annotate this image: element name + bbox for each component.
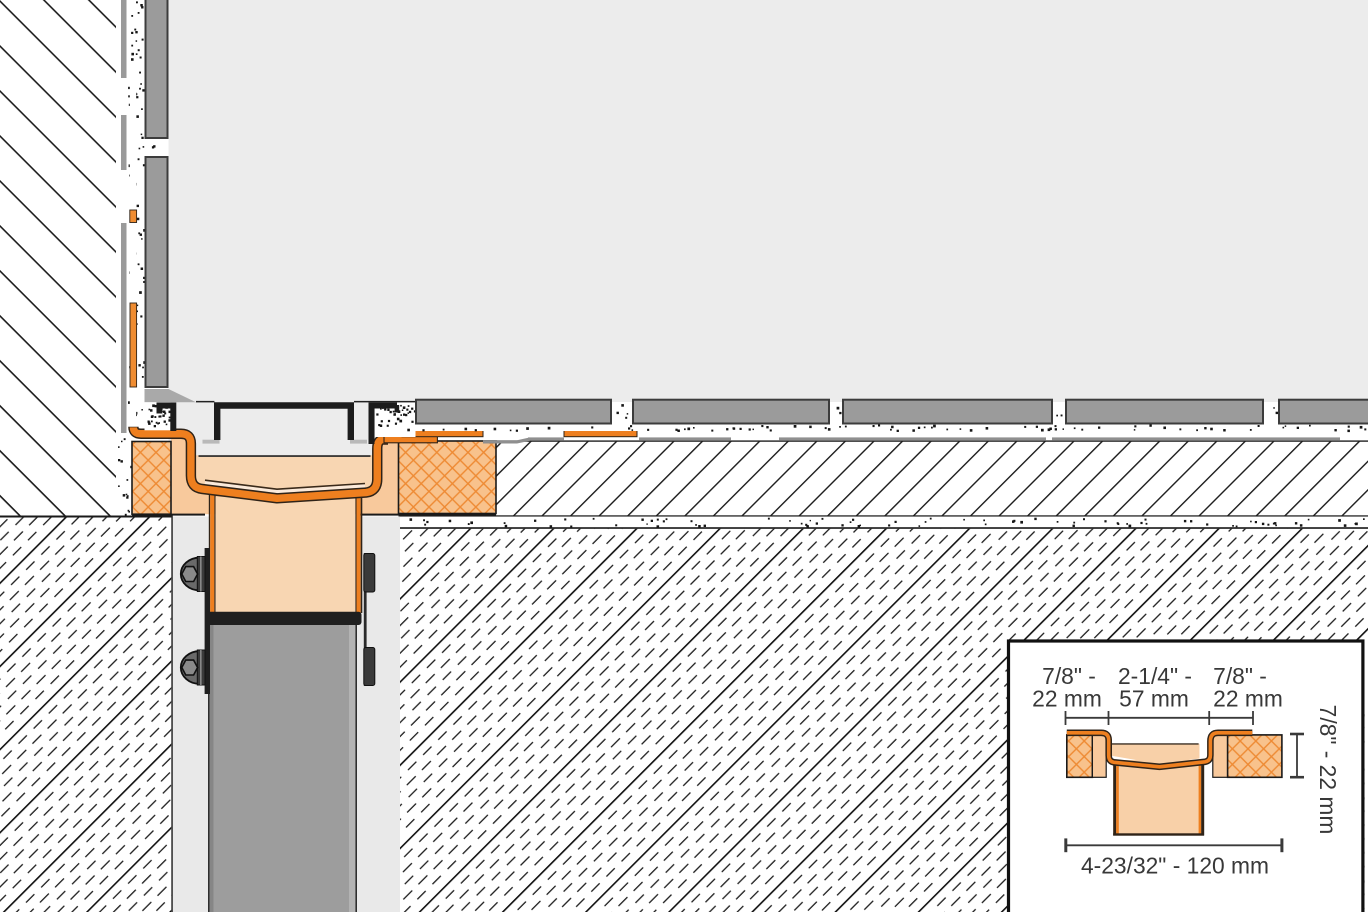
svg-text:57 mm: 57 mm [1119, 686, 1189, 712]
svg-text:22 mm: 22 mm [1213, 686, 1283, 712]
svg-text:4-23/32" - 120 mm: 4-23/32" - 120 mm [1081, 853, 1269, 879]
svg-text:7/8" - 22 mm: 7/8" - 22 mm [1315, 705, 1341, 835]
svg-text:22 mm: 22 mm [1032, 686, 1102, 712]
